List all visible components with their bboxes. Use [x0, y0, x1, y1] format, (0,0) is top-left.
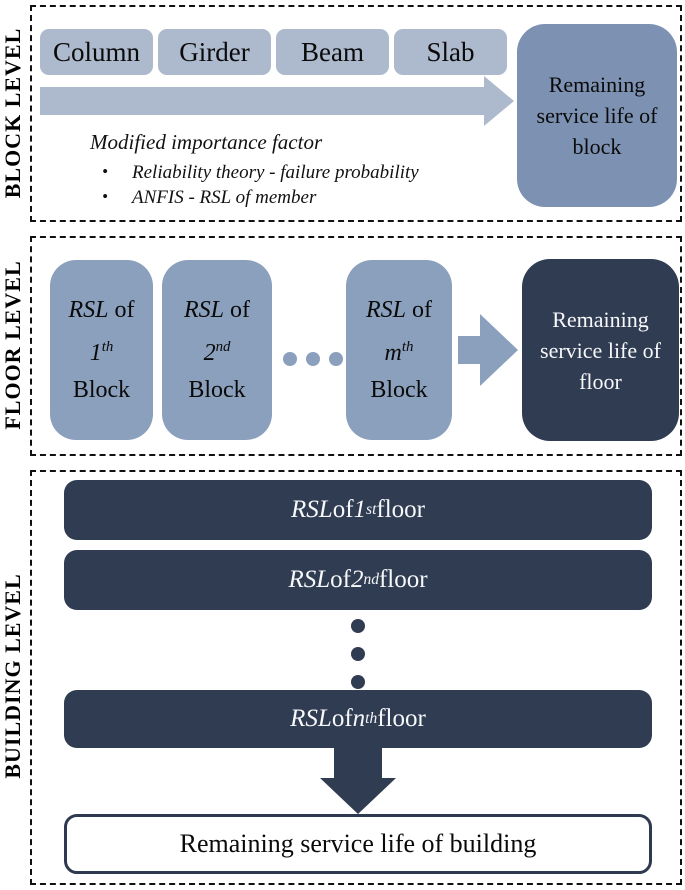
bullet-text-reliability: Reliability theory - failure probability: [132, 162, 419, 184]
rsl-block-2: RSL of 2nd Block: [162, 260, 272, 440]
rsl-floor-bar-1: RSL of 1st floor: [64, 480, 652, 540]
rsl-block-line2: 2nd: [204, 329, 231, 372]
bullet-item: • ANFIS - RSL of member: [102, 187, 316, 209]
rsl-floor-bar-2: RSL of 2nd floor: [64, 550, 652, 610]
rsl-block-line1: RSL of: [366, 292, 432, 329]
rsl-block-line2: mth: [385, 329, 414, 372]
member-box-girder: Girder: [158, 29, 271, 75]
bullet-text-anfis: ANFIS - RSL of member: [132, 187, 316, 209]
floor-level-section: RSL of 1th Block RSL of 2nd Block RSL of…: [30, 236, 682, 456]
ellipsis-dot-icon: [329, 352, 343, 366]
bullet-icon: •: [102, 162, 132, 184]
right-arrow-head-icon: [480, 314, 518, 386]
ellipsis-dot-icon: [351, 675, 365, 689]
ellipsis-dot-icon: [351, 647, 365, 661]
rsl-block-line1: RSL of: [184, 292, 250, 329]
member-box-column: Column: [40, 29, 153, 75]
bullet-item: • Reliability theory - failure probabili…: [102, 162, 419, 184]
building-level-label: BUILDING LEVEL: [0, 556, 26, 796]
rsl-block-1: RSL of 1th Block: [50, 260, 153, 440]
rsl-of-building-box: Remaining service life of building: [64, 814, 652, 874]
building-level-section: RSL of 1st floor RSL of 2nd floor RSL of…: [30, 470, 682, 885]
down-arrow-head-icon: [320, 778, 396, 814]
floor-level-label: FLOOR LEVEL: [0, 245, 26, 445]
rsl-block-line3: Block: [73, 372, 130, 409]
ellipsis-dot-icon: [306, 352, 320, 366]
right-arrow-head-icon: [484, 76, 514, 126]
rsl-block-m: RSL of mth Block: [346, 260, 452, 440]
ellipsis-dot-icon: [351, 619, 365, 633]
member-box-beam: Beam: [276, 29, 389, 75]
ellipsis-dot-icon: [283, 352, 297, 366]
block-level-label: BLOCK LEVEL: [0, 13, 26, 213]
member-box-slab: Slab: [394, 29, 507, 75]
rsl-block-line3: Block: [188, 372, 245, 409]
rsl-block-line1: RSL of: [68, 292, 134, 329]
rsl-floor-bar-n: RSL of nth floor: [64, 690, 652, 748]
rsl-block-line3: Block: [370, 372, 427, 409]
rsl-hierarchy-diagram: BLOCK LEVEL Column Girder Beam Slab Modi…: [0, 0, 685, 890]
block-level-section: Column Girder Beam Slab Modified importa…: [30, 5, 682, 222]
importance-factor-title: Modified importance factor: [90, 130, 322, 155]
bullet-icon: •: [102, 187, 132, 209]
rsl-of-floor-box: Remaining service life of floor: [522, 259, 679, 441]
down-arrow-stem: [334, 748, 382, 778]
right-arrow-band: [40, 87, 484, 115]
rsl-block-line2: 1th: [90, 329, 114, 372]
right-arrow-stem: [458, 336, 480, 364]
rsl-of-block-box: Remaining service life of block: [517, 24, 677, 207]
